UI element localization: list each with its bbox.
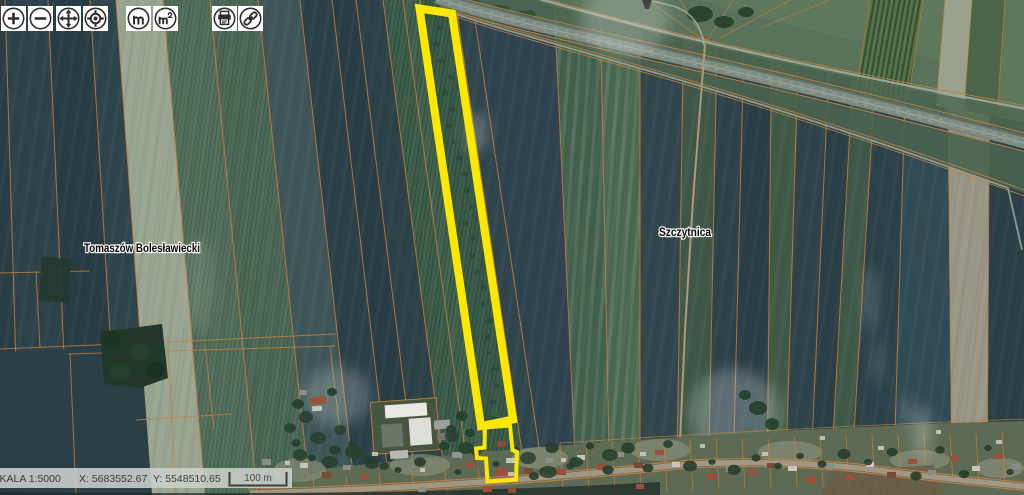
svg-text:SKALA 1:5000: SKALA 1:5000 xyxy=(0,473,61,485)
svg-text:Tomaszów Bolesławiecki: Tomaszów Bolesławiecki xyxy=(84,241,200,255)
svg-text:100 m: 100 m xyxy=(244,473,272,484)
svg-text:X: 5683552.67 Y: 5548510.65: X: 5683552.67 Y: 5548510.65 xyxy=(79,473,221,485)
svg-text:Szczytnica: Szczytnica xyxy=(659,225,711,239)
